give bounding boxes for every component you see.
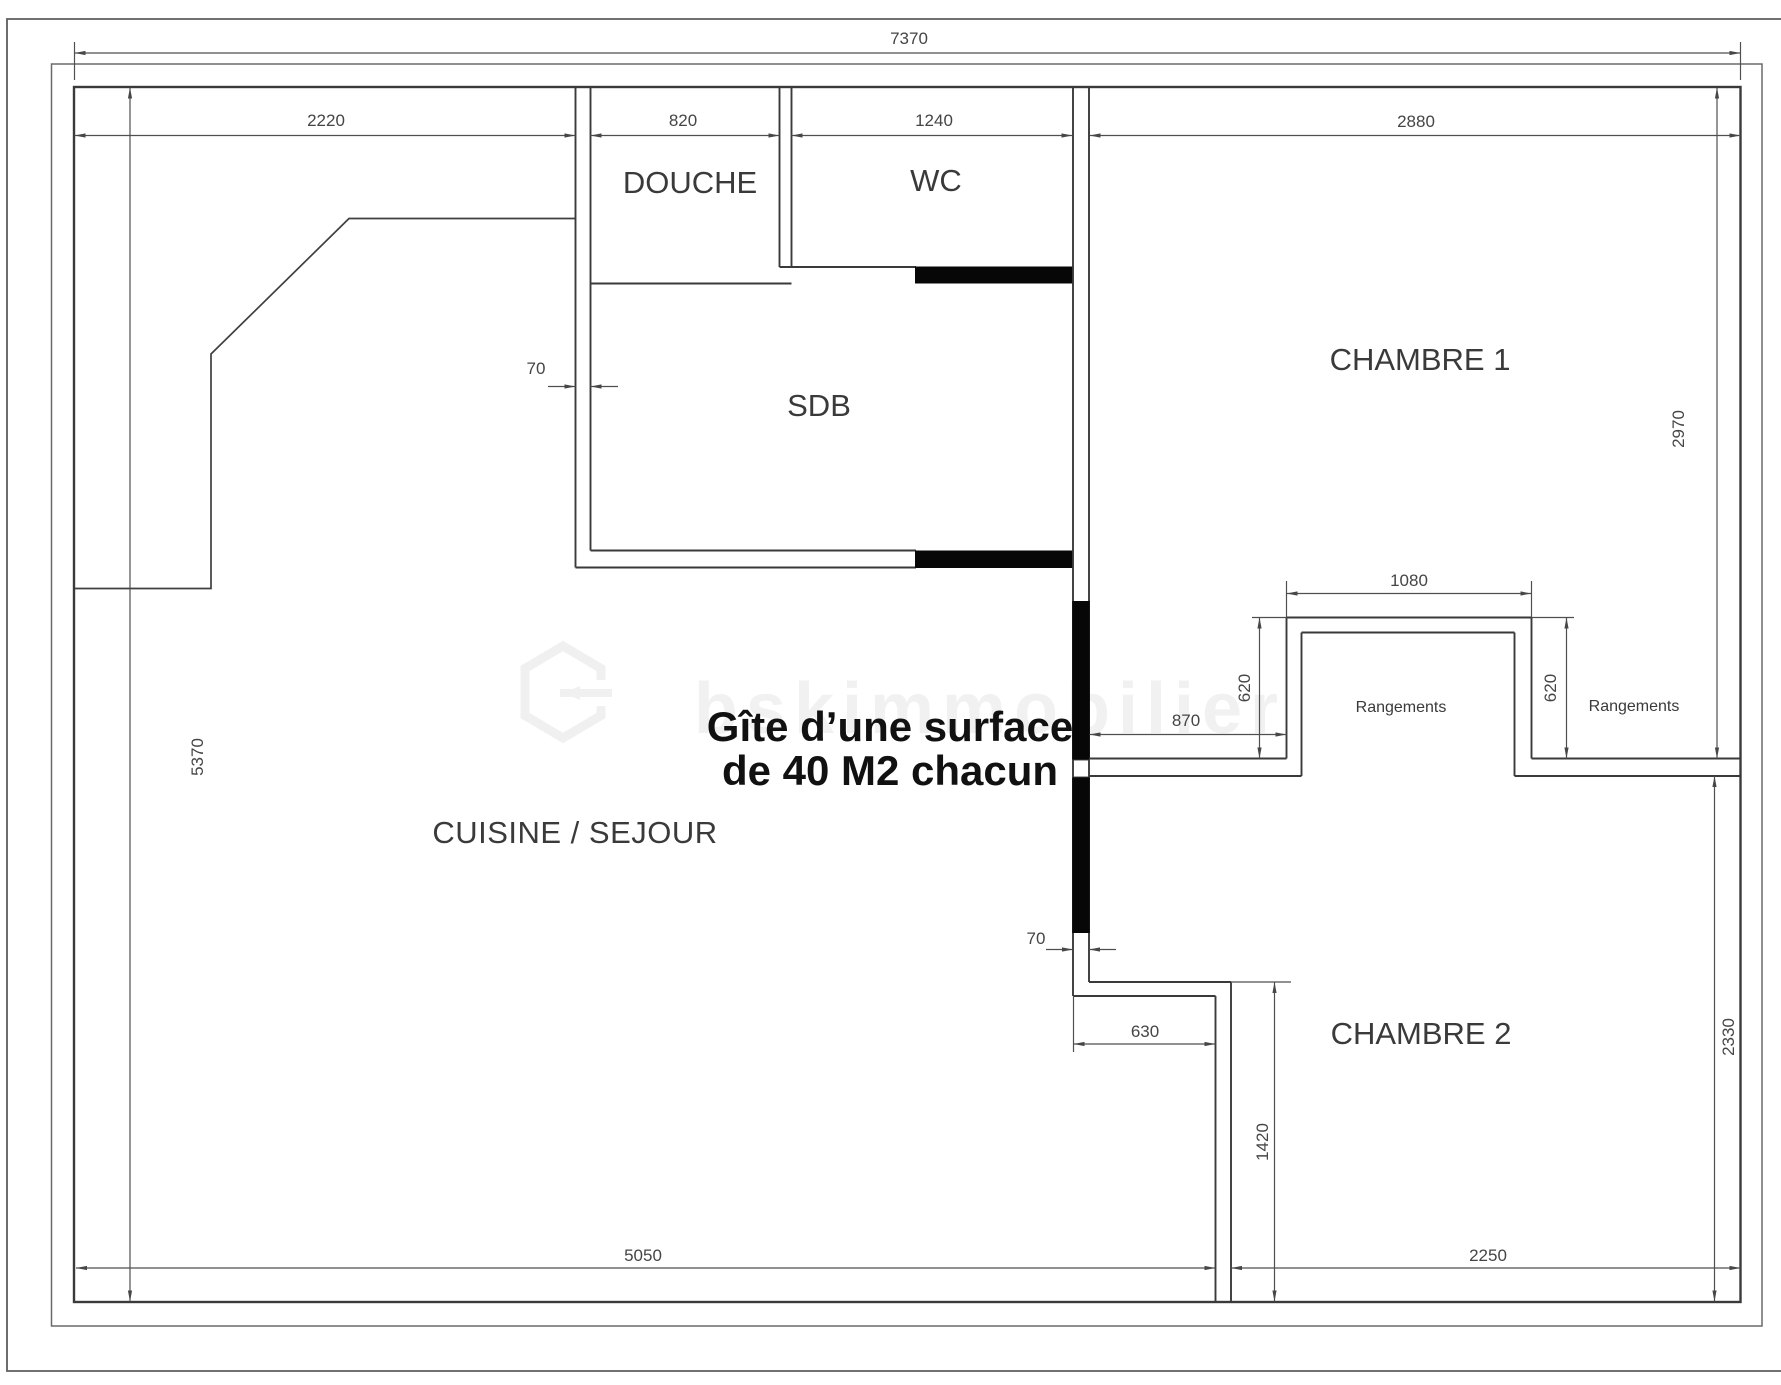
svg-text:820: 820	[669, 111, 697, 130]
svg-text:70: 70	[1027, 929, 1046, 948]
svg-text:2330: 2330	[1719, 1018, 1738, 1056]
svg-text:1240: 1240	[915, 111, 953, 130]
svg-text:2220: 2220	[307, 111, 345, 130]
svg-text:70: 70	[527, 359, 546, 378]
svg-text:Gîte d’une surface: Gîte d’une surface	[707, 703, 1073, 750]
svg-text:SDB: SDB	[787, 388, 851, 423]
svg-text:620: 620	[1541, 674, 1560, 702]
svg-text:CUISINE / SEJOUR: CUISINE / SEJOUR	[432, 815, 717, 850]
svg-text:2250: 2250	[1469, 1246, 1507, 1265]
svg-text:620: 620	[1235, 674, 1254, 702]
svg-text:5370: 5370	[188, 738, 207, 776]
svg-text:CHAMBRE 1: CHAMBRE 1	[1330, 342, 1511, 377]
svg-text:DOUCHE: DOUCHE	[623, 165, 757, 200]
svg-text:2970: 2970	[1669, 410, 1688, 448]
svg-text:7370: 7370	[890, 29, 928, 48]
svg-text:Rangements: Rangements	[1589, 698, 1680, 715]
svg-text:5050: 5050	[624, 1246, 662, 1265]
svg-text:870: 870	[1172, 711, 1200, 730]
svg-text:WC: WC	[910, 163, 962, 198]
svg-text:1080: 1080	[1390, 571, 1428, 590]
svg-text:2880: 2880	[1397, 112, 1435, 131]
svg-text:CHAMBRE 2: CHAMBRE 2	[1331, 1016, 1512, 1051]
svg-text:de 40 M2 chacun: de 40 M2 chacun	[722, 747, 1058, 794]
svg-text:630: 630	[1131, 1022, 1159, 1041]
svg-text:Rangements: Rangements	[1356, 699, 1447, 716]
svg-text:1420: 1420	[1253, 1123, 1272, 1161]
